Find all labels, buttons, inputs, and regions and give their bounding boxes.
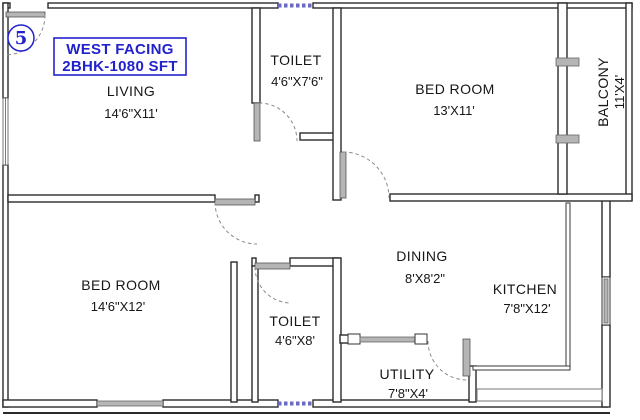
- window-kitchen-right: [602, 277, 610, 325]
- room-dims-bedroom2: 14'6"X12': [91, 299, 145, 314]
- room-dims-balcony: 11'X4': [612, 75, 627, 109]
- door-bedroom2: [215, 199, 257, 244]
- window-utility: [348, 334, 427, 344]
- door-toilet2: [255, 263, 291, 303]
- room-dims-utility: 7'8"X4': [388, 386, 428, 401]
- room-dims-living: 14'6"X11': [104, 106, 157, 121]
- area-label: 2BHK-1080 SFT: [62, 58, 178, 75]
- room-label-toilet1: TOILET: [270, 52, 321, 68]
- room-label-bedroom1: BED ROOM: [415, 81, 494, 97]
- room-label-balcony-group: BALCONY 11'X4': [595, 57, 627, 127]
- room-labels: LIVING 14'6"X11' TOILET 4'6"X7'6" BED RO…: [81, 52, 627, 401]
- room-dims-kitchen: 7'8"X12': [503, 301, 550, 316]
- room-label-living: LIVING: [107, 83, 155, 99]
- room-label-bedroom2: BED ROOM: [81, 277, 160, 293]
- room-label-toilet2: TOILET: [269, 313, 320, 329]
- floor-plan-drawing: 5 WEST FACING 2BHK-1080 SFT LIVING 14'6"…: [0, 0, 640, 420]
- room-label-kitchen: KITCHEN: [493, 281, 557, 297]
- room-label-balcony: BALCONY: [595, 57, 611, 127]
- door-bedroom1: [340, 152, 389, 198]
- info-box: WEST FACING 2BHK-1080 SFT: [54, 38, 186, 75]
- door-toilet1: [254, 103, 297, 141]
- window-balcony-upper: [556, 58, 579, 66]
- kitchen-counter-line-vertical: [566, 203, 570, 367]
- room-dims-bedroom1: 13'X11': [433, 103, 475, 118]
- floor-plan-sheet: 5 WEST FACING 2BHK-1080 SFT LIVING 14'6"…: [0, 0, 640, 420]
- unit-number: 5: [15, 28, 28, 49]
- unit-number-badge: 5: [8, 25, 34, 51]
- kitchen-counter-line-horizontal: [473, 366, 570, 370]
- facing-label: WEST FACING: [66, 41, 173, 58]
- room-label-utility: UTILITY: [380, 366, 435, 382]
- window-balcony-lower: [556, 135, 579, 143]
- window-living-left: [3, 98, 8, 165]
- window-bedroom2-bottom: [97, 401, 163, 406]
- kitchen-platform: [477, 389, 602, 401]
- room-label-dining: DINING: [396, 248, 447, 264]
- room-dims-toilet1: 4'6"X7'6": [271, 74, 323, 89]
- room-dims-toilet2: 4'6"X8': [275, 333, 315, 348]
- room-dims-dining: 8'X8'2": [405, 271, 445, 286]
